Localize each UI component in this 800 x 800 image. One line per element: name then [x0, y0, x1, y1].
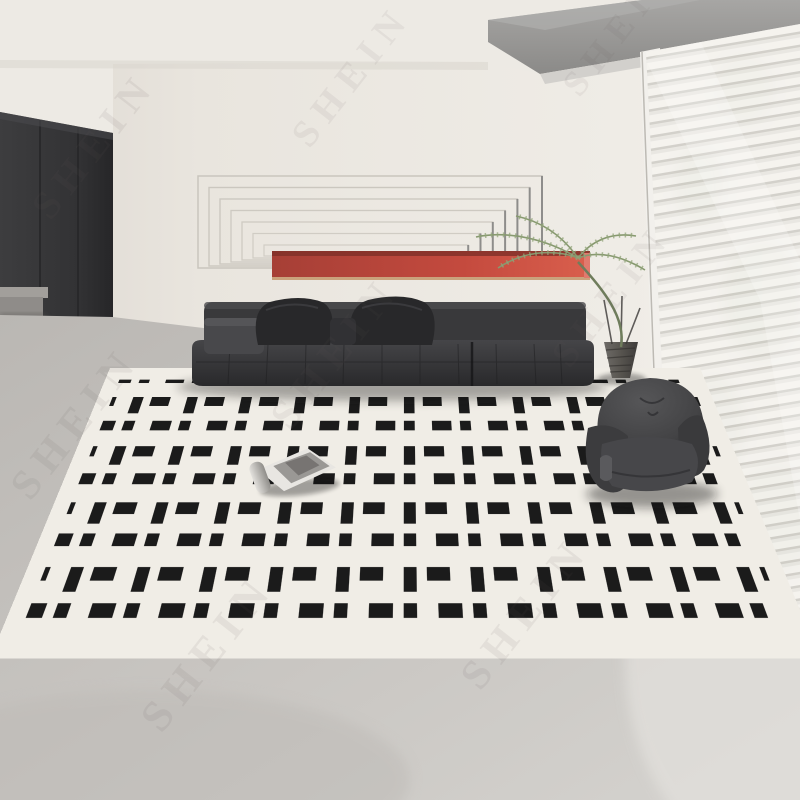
room-photo: SHEIN SHEIN SHEIN SHEIN SHEIN SHEIN SHEI…: [0, 0, 800, 800]
lounge-chair: [586, 378, 710, 493]
palm-fronds: [476, 216, 645, 270]
magazine: [246, 445, 340, 500]
chair-strap: [600, 455, 612, 481]
stone-vase: [604, 342, 638, 378]
modular-sofa: [192, 296, 594, 386]
furniture: [0, 0, 800, 800]
